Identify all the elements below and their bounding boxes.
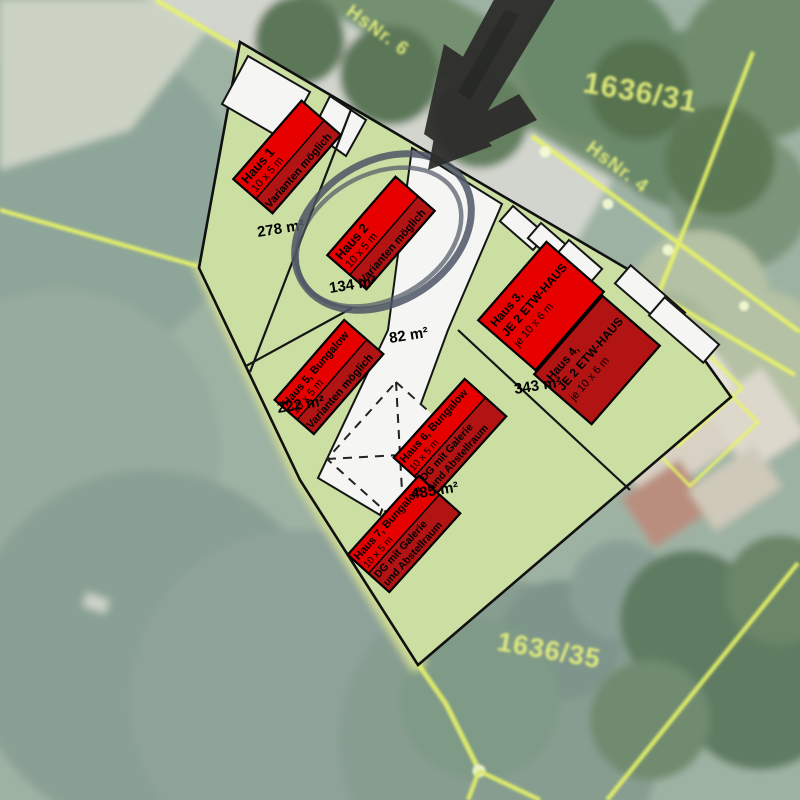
boundary-point [739, 301, 749, 311]
aerial-site-plan: 1636/31 1636/35 HsNr. 4 HsNr. 6 Haus 1 1… [0, 0, 800, 800]
tree [590, 660, 710, 780]
site-plan-canvas: 1636/31 1636/35 HsNr. 4 HsNr. 6 Haus 1 1… [0, 0, 800, 800]
boundary-point [540, 147, 551, 158]
boundary-point [603, 199, 614, 210]
tree [665, 105, 775, 215]
boundary-point [663, 245, 674, 256]
